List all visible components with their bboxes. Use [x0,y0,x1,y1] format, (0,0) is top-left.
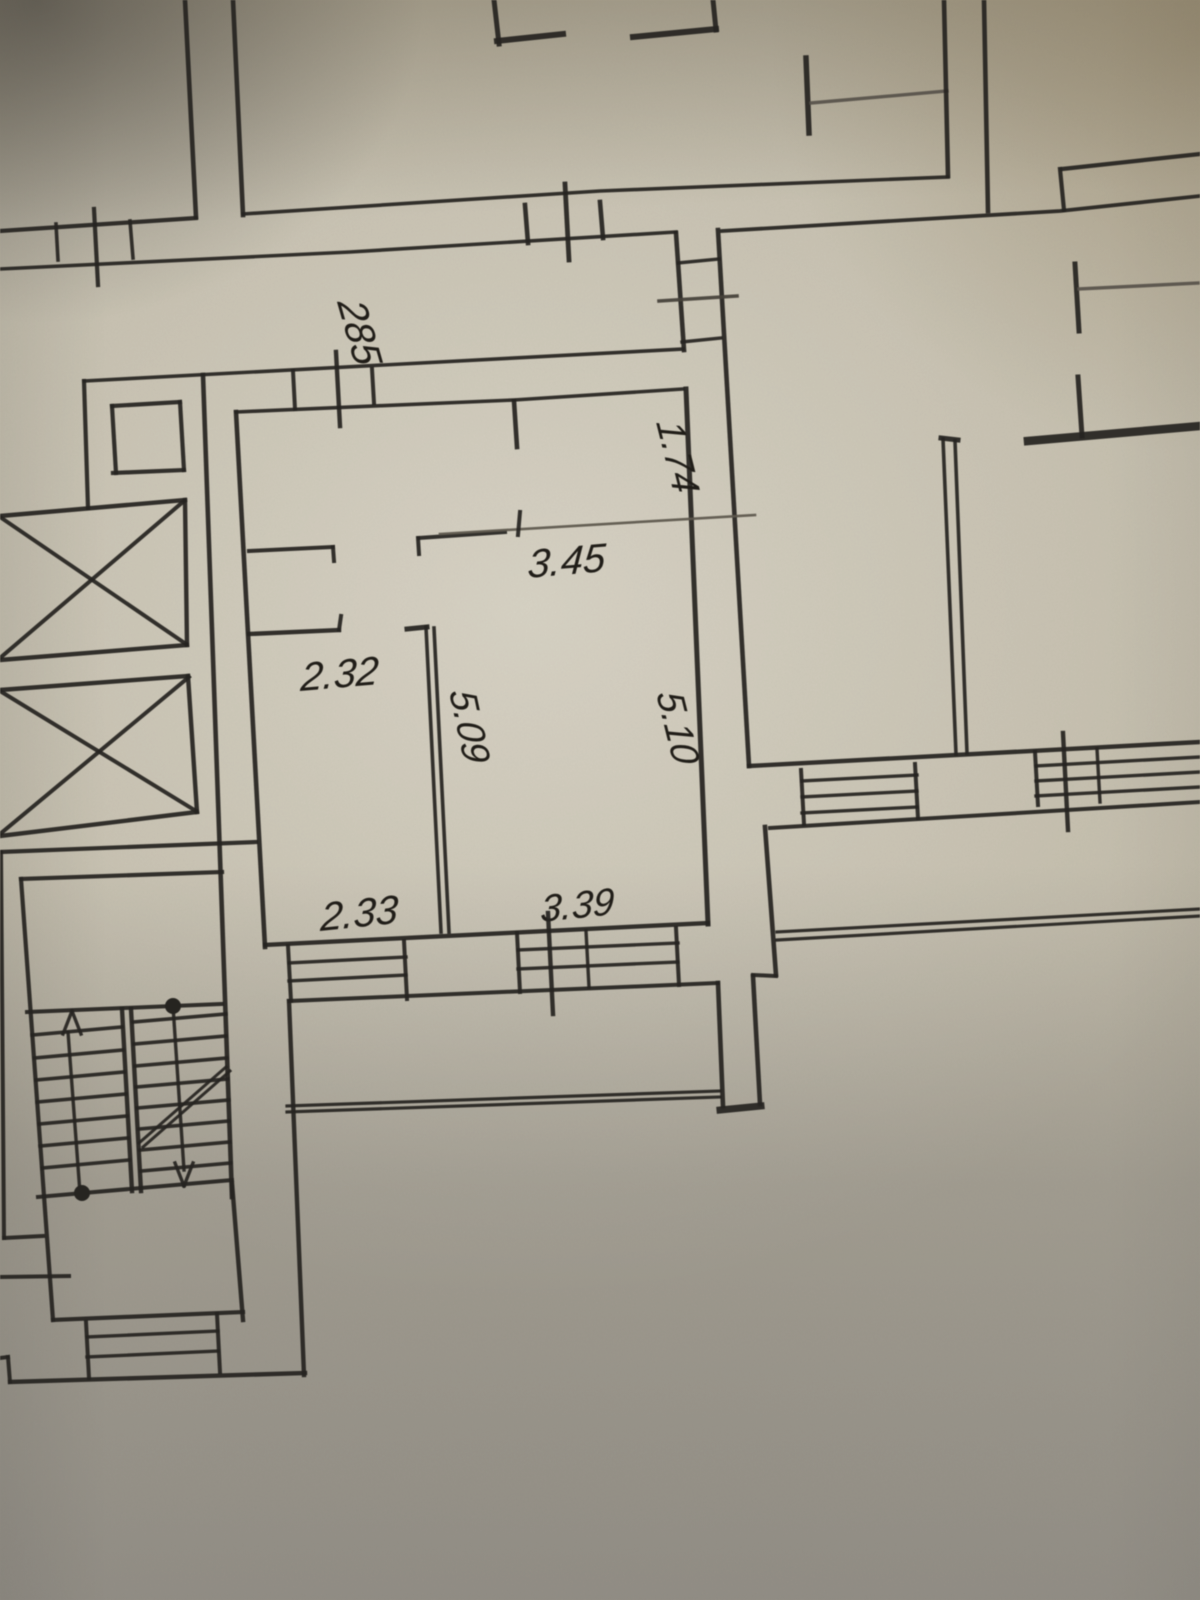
svg-text:2.32: 2.32 [298,648,380,700]
svg-text:2.33: 2.33 [319,887,400,941]
svg-text:3.45: 3.45 [526,535,607,587]
svg-text:3.39: 3.39 [540,880,616,931]
